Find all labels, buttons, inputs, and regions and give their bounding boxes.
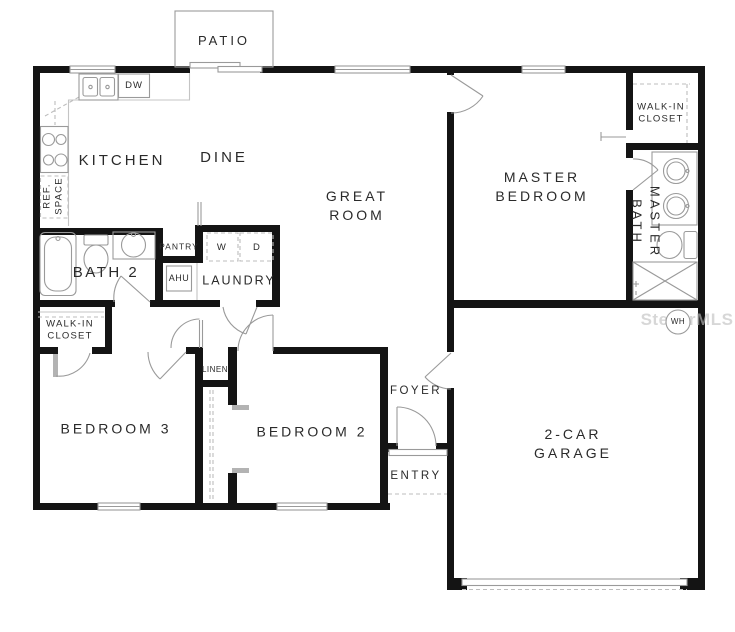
master-closet-door-leaf xyxy=(601,132,626,141)
shower-fixture xyxy=(633,262,697,300)
pantry-door-leaf xyxy=(198,202,201,226)
floor-plan: StellarMLS xyxy=(0,0,735,632)
label-entry: ENTRY xyxy=(390,469,441,485)
window xyxy=(70,66,565,510)
label-ahu: AHU xyxy=(169,273,190,285)
kitchen-sink-fixture xyxy=(79,74,118,100)
label-master-walkin-closet: WALK-IN CLOSET xyxy=(637,102,685,127)
label-dishwasher: DW xyxy=(125,80,143,92)
label-ref-space: REF. SPACE xyxy=(42,177,67,215)
label-washer: W xyxy=(217,242,227,254)
label-dryer: D xyxy=(253,242,261,254)
label-bath2: BATH 2 xyxy=(73,263,139,283)
label-patio: PATIO xyxy=(198,32,250,50)
label-master-bedroom: MASTER BEDROOM xyxy=(495,168,588,206)
label-water-heater: WH xyxy=(671,317,685,327)
label-linen: LINEN xyxy=(202,365,228,375)
garage-door xyxy=(462,579,687,590)
walkin-closet-door-swing xyxy=(56,353,90,376)
linen-door-leaf xyxy=(171,319,203,348)
closet-shelf-lines xyxy=(38,312,104,317)
label-bedroom3-walkin-closet: WALK-IN CLOSET xyxy=(46,319,94,344)
bathtub-fixture xyxy=(40,233,76,296)
label-kitchen: KITCHEN xyxy=(79,151,166,171)
sink-fixture xyxy=(113,232,155,259)
stove-fixture xyxy=(41,127,69,173)
label-great-room: GREAT ROOM xyxy=(326,187,388,225)
label-master-bath: MASTER BATH xyxy=(628,186,663,258)
label-foyer: FOYER xyxy=(390,384,442,400)
closet-rod-line xyxy=(210,390,213,500)
fixture-layer xyxy=(0,0,735,632)
bedroom2-door-swing xyxy=(238,315,273,351)
bedroom3-door-swing xyxy=(148,352,186,379)
front-door-swing xyxy=(397,407,436,446)
master-bedroom-door-swing xyxy=(451,75,483,113)
label-bedroom2: BEDROOM 2 xyxy=(256,423,367,442)
patio-slider-door xyxy=(190,63,262,73)
label-dine: DINE xyxy=(200,148,248,168)
label-garage: 2-CAR GARAGE xyxy=(534,425,612,463)
label-laundry: LAUNDRY xyxy=(202,273,276,290)
label-bedroom3: BEDROOM 3 xyxy=(60,420,171,439)
label-pantry: PANTRY xyxy=(159,241,199,252)
laundry-door-swing xyxy=(223,307,257,334)
kitchen-counter xyxy=(45,73,190,226)
